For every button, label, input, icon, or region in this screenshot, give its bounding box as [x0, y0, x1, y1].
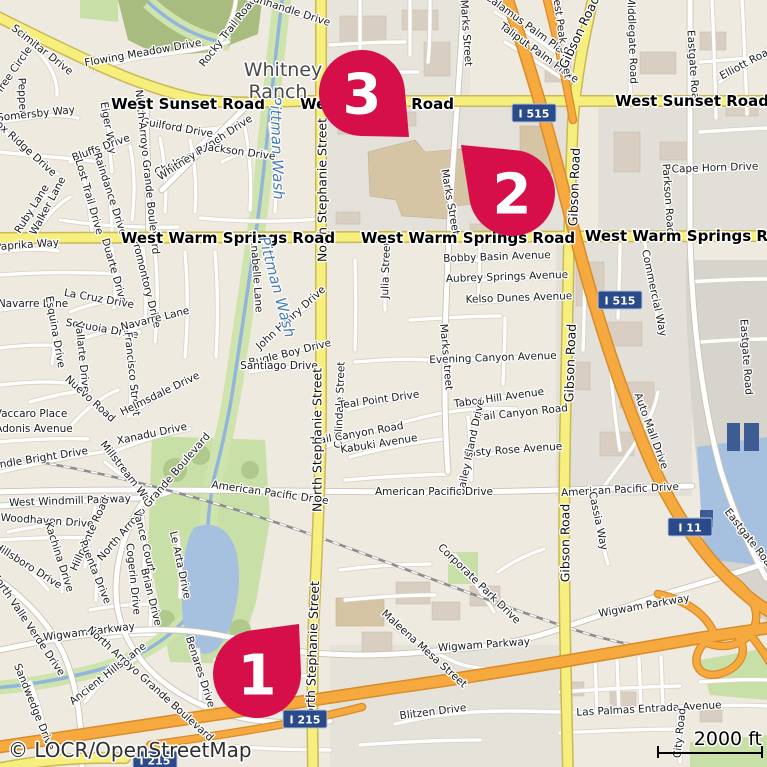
street-label: Santiago Drive — [240, 360, 318, 372]
water-label: Pittman Wash — [266, 96, 288, 200]
shield-label: I 515 — [519, 108, 550, 121]
major-road-label: West Warm Springs Road — [121, 229, 335, 247]
major-road-label: West Warm Springs Road — [585, 227, 767, 245]
road-label: Gibson Road — [565, 148, 583, 227]
map-image[interactable]: Scimitar DriveTree CirclePepperFlowing M… — [0, 0, 767, 767]
marker-number: 1 — [238, 644, 277, 709]
major-road-label: West Warm Springs Road — [361, 229, 575, 247]
shield-label: I 215 — [290, 714, 321, 727]
street-label: American Pacific Drive — [375, 486, 493, 498]
place-label: Whitney — [244, 59, 323, 81]
route-shield: I 11 — [668, 518, 712, 536]
route-shield: I 215 — [283, 710, 327, 728]
map-viewport[interactable]: Scimitar DriveTree CirclePepperFlowing M… — [0, 0, 767, 767]
shield-label: I 11 — [678, 522, 701, 535]
road-label: North Stephanie Street — [310, 368, 325, 512]
shield-label: I 515 — [605, 295, 636, 308]
road-label: Gibson Road — [561, 324, 579, 403]
street-label: Julia Street — [379, 241, 393, 300]
street-label: Vaccaro Place — [0, 408, 67, 420]
marker-number: 2 — [493, 163, 532, 228]
street-label: Navarre Lane — [0, 298, 68, 310]
route-shield: I 515 — [598, 291, 642, 309]
road-label: Gibson Road — [558, 504, 573, 583]
major-road-label: West Sunset Road — [111, 95, 265, 113]
scale-label: 2000 ft — [694, 728, 762, 750]
attribution-text: © LOCR/OpenStreetMap — [8, 738, 252, 762]
place-label: Ranch — [249, 81, 308, 103]
major-road-label: West Sunset Road — [615, 92, 767, 110]
route-shield: I 515 — [512, 104, 556, 122]
street-label: Adonis Avenue — [0, 423, 73, 435]
marker-number: 3 — [343, 63, 382, 128]
